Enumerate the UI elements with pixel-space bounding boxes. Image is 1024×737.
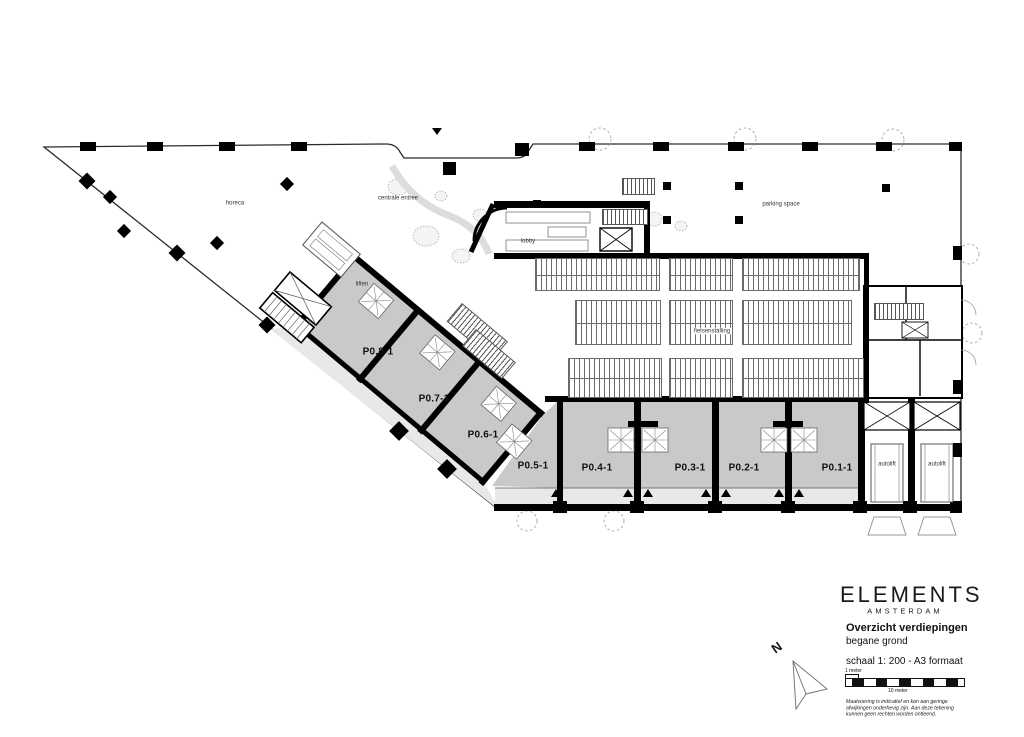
disclaimer-text: Maatvoering is indicatief en kan aan ger… [846,699,954,718]
scale-bar [845,678,965,687]
room-label-liften: liften [356,281,369,288]
staircase [874,303,924,320]
north-arrow-icon [793,661,827,709]
scale-note: schaal 1: 200 - A3 formaat [846,656,963,667]
unit-label-p0-1-1: P0.1-1 [822,463,853,474]
room-label-horeca: horeca [226,200,244,207]
room-label-lobby: lobby [521,238,535,245]
unit-label-p0-6-1: P0.6-1 [468,430,499,441]
unit-label-p0-5-1: P0.5-1 [518,461,549,472]
scalebar-small-label: 1 meter [845,668,862,674]
floorplan-page: horeca centrale entree lobby liften park… [0,0,1024,737]
staircase [602,209,648,225]
bike-rack-row [568,358,662,398]
bike-rack-row [742,258,860,291]
room-label-fietsenstalling: fietsenstalling [693,328,732,335]
brand-logo: ELEMENTS [840,582,970,608]
unit-label-p0-7-1: P0.7-1 [419,394,450,405]
bike-rack-row [742,300,852,345]
room-label-parking-space: parking space [762,201,799,208]
bike-rack-row [669,358,733,398]
room-label-autolift-1: autolift [878,461,896,468]
brand-subtitle: AMSTERDAM [865,607,946,616]
bike-rack-row [669,258,733,291]
drawing-subtitle: begane grond [846,636,908,647]
unit-label-p0-8-1: P0.8-1 [363,347,394,358]
room-label-autolift-2: autolift [928,461,946,468]
bike-rack-row [669,300,733,345]
drawing-title: Overzicht verdiepingen [846,622,968,634]
room-label-centrale-entree: centrale entree [378,195,418,202]
unit-label-p0-2-1: P0.2-1 [729,463,760,474]
bike-rack-row [575,300,661,345]
walkway-bottom [495,488,860,504]
scalebar-large-label: 10 meter [888,688,908,694]
staircase [622,178,655,195]
unit-label-p0-3-1: P0.3-1 [675,463,706,474]
bike-rack-row [535,258,660,291]
bike-rack-row [742,358,864,398]
unit-label-p0-4-1: P0.4-1 [582,463,613,474]
